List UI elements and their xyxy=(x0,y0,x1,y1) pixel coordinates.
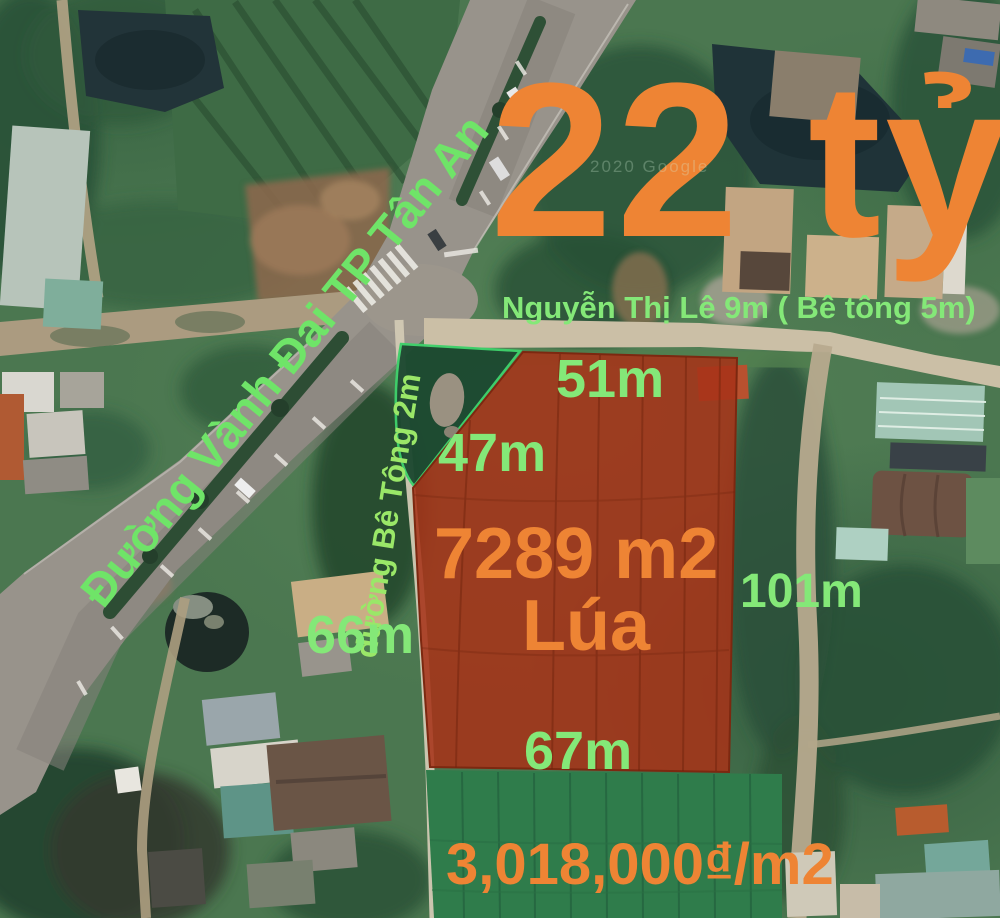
front-road-label: Nguyễn Thị Lê 9m ( Bê tông 5m) xyxy=(502,292,976,323)
price-banner: 22 tỷ xyxy=(490,50,1000,270)
price-per-m2-label: 3,018,000₫/m2 xyxy=(446,836,834,894)
house-roof xyxy=(966,478,1000,564)
house-roof xyxy=(871,470,973,537)
edge-northwest-label: 47m xyxy=(438,426,546,480)
house-roof xyxy=(202,692,280,745)
land-use-label: Lúa xyxy=(522,590,650,662)
imagery-watermark: 2020 Google xyxy=(590,158,709,175)
house-roof xyxy=(60,372,104,408)
house-roof xyxy=(23,456,89,494)
house-roof xyxy=(840,884,880,918)
house-roof xyxy=(148,848,206,908)
edge-north-label: 51m xyxy=(556,352,664,406)
house-roof xyxy=(0,394,24,480)
edge-south-label: 67m xyxy=(524,724,632,778)
edge-east-label: 101m xyxy=(740,568,863,616)
edge-west-label: 66m xyxy=(306,608,414,662)
house-roof xyxy=(27,410,86,458)
parcel-area-label: 7289 m2 xyxy=(434,518,718,590)
house-roof xyxy=(247,860,316,908)
satellite-map-canvas: 22 tỷ Đường Vành Đai TP Tân An Nguyễn Th… xyxy=(0,0,1000,918)
house-roof xyxy=(835,527,888,561)
house-roof xyxy=(43,279,103,330)
house-roof xyxy=(114,766,141,793)
house-roof xyxy=(890,442,987,471)
house-roof xyxy=(875,870,1000,918)
house-roof xyxy=(895,804,949,836)
